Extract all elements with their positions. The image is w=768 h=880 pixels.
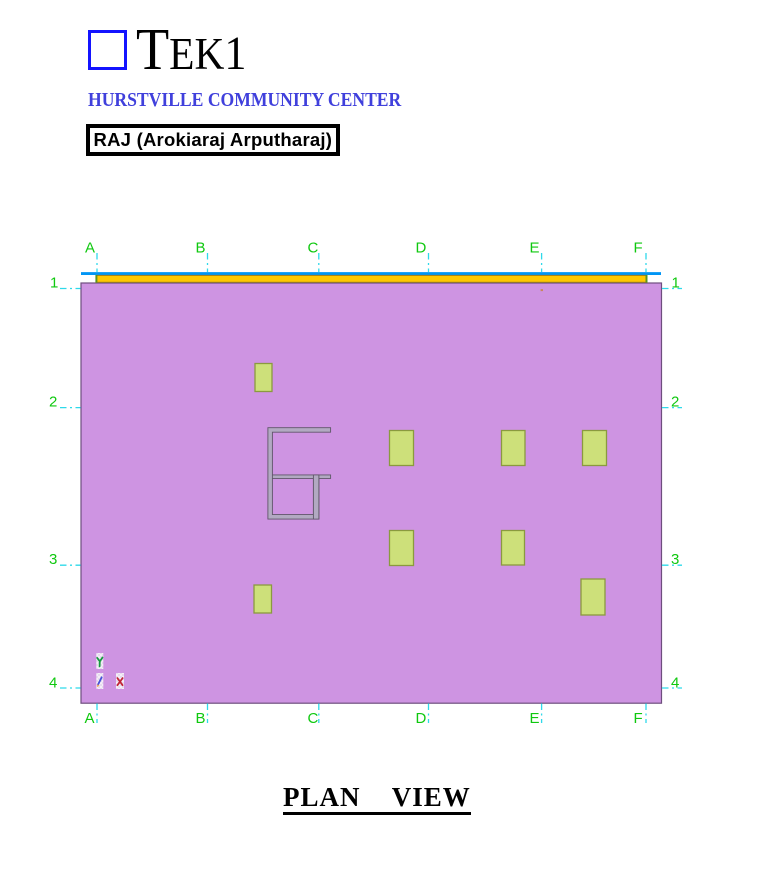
svg-text:1: 1	[672, 275, 680, 292]
svg-text:4: 4	[671, 674, 679, 691]
svg-text:E: E	[530, 710, 540, 727]
svg-text:3: 3	[671, 551, 679, 568]
svg-text:1: 1	[50, 275, 58, 292]
svg-text:C: C	[308, 710, 319, 727]
svg-text:F: F	[634, 240, 643, 257]
svg-text:3: 3	[49, 551, 57, 568]
svg-text:F: F	[634, 710, 643, 727]
svg-text:D: D	[416, 710, 427, 727]
svg-text:C: C	[308, 240, 319, 257]
svg-text:B: B	[196, 710, 206, 727]
svg-text:4: 4	[49, 674, 57, 691]
svg-text:D: D	[416, 240, 427, 257]
svg-text:2: 2	[49, 393, 57, 410]
svg-text:A: A	[85, 240, 95, 257]
svg-text:A: A	[85, 710, 95, 727]
svg-text:B: B	[196, 240, 206, 257]
svg-text:2: 2	[671, 393, 679, 410]
svg-text:E: E	[530, 240, 540, 257]
